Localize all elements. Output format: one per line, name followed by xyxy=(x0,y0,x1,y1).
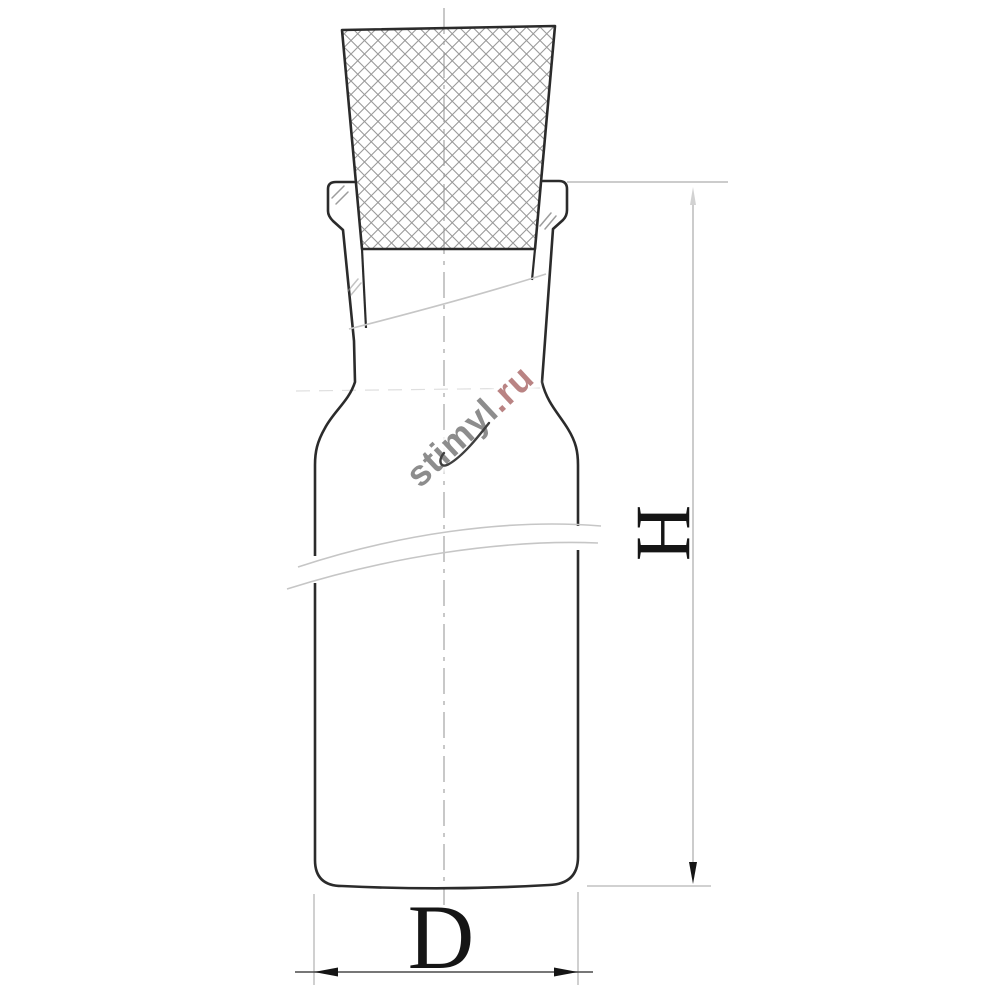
body-break-line-upper xyxy=(298,524,601,567)
arrowhead-left-icon xyxy=(314,968,338,977)
arrowhead-right-icon xyxy=(554,968,578,977)
body-break-line-lower xyxy=(287,542,598,589)
ground-glass-stopper xyxy=(342,26,555,328)
bottle-technical-drawing: H D stimyl.ru stimyl.ru xyxy=(0,0,1000,1000)
bottle-outline xyxy=(315,181,578,888)
watermark-text: stimyl.ru xyxy=(398,356,542,494)
neck-break-line xyxy=(349,274,546,329)
stopper-shank-right-line xyxy=(532,249,535,280)
stopper-hatched-body xyxy=(342,26,555,249)
stopper-shank-left-line xyxy=(362,249,366,328)
tick-flange-left-2 xyxy=(336,192,348,204)
break-gap-right xyxy=(572,526,584,550)
dimension-label-d: D xyxy=(408,886,474,988)
technical-drawing-page: H D stimyl.ru stimyl.ru xyxy=(0,0,1000,1000)
watermark: stimyl.ru stimyl.ru xyxy=(398,356,542,494)
dimension-diameter: D xyxy=(295,886,593,988)
dimension-label-h: H xyxy=(619,505,706,561)
arrowhead-up-icon xyxy=(690,187,696,205)
arrowhead-down-icon xyxy=(689,862,697,884)
tick-flange-left-1 xyxy=(332,186,344,198)
dimension-height: H xyxy=(567,182,728,886)
